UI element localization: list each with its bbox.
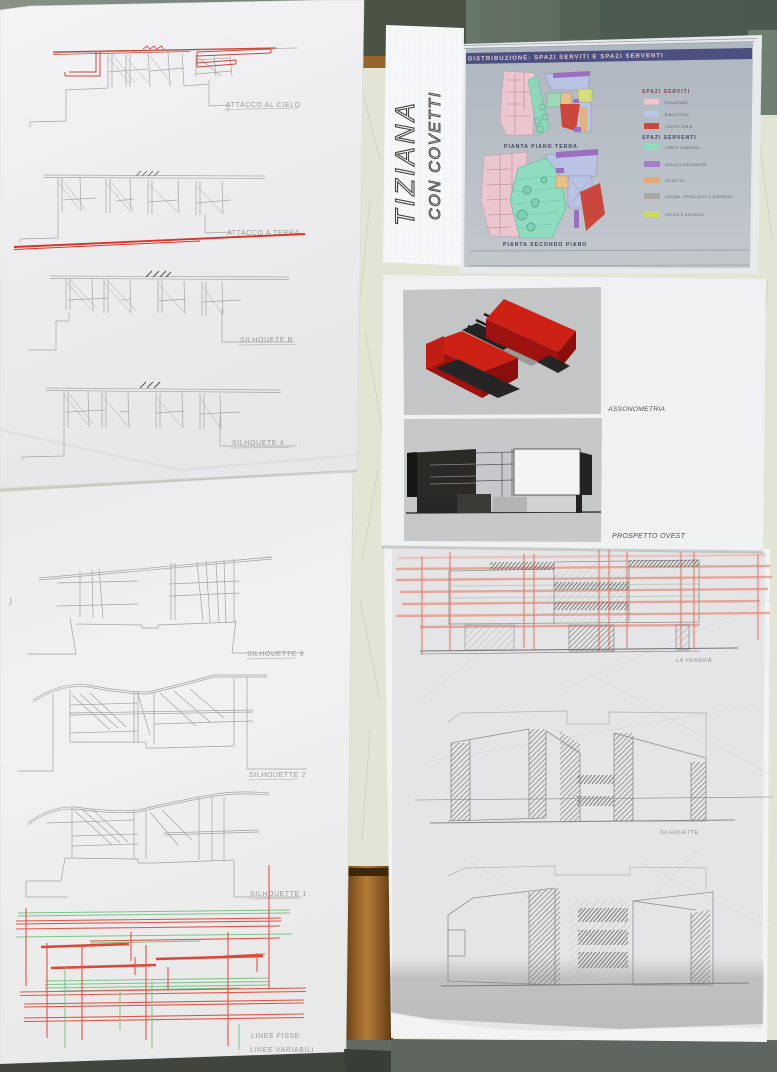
svg-text:CAFFETTERIA: CAFFETTERIA <box>665 125 693 129</box>
svg-text:LINEE FISSE: LINEE FISSE <box>251 1033 300 1040</box>
svg-text:SILHOUETE 4: SILHOUETE 4 <box>232 440 284 447</box>
svg-text:SILHOUETTE 3: SILHOUETTE 3 <box>247 651 304 658</box>
svg-text:LINEE VARIABILI: LINEE VARIABILI <box>250 1047 314 1054</box>
svg-text:RESIDENZE: RESIDENZE <box>665 101 688 105</box>
svg-text:SILHOUETE B: SILHOUETE B <box>240 337 293 344</box>
svg-text:TOILETTE: TOILETTE <box>665 179 685 183</box>
svg-text:PIANTA SECONDO PIANO: PIANTA SECONDO PIANO <box>503 242 587 248</box>
svg-text:LA VENARIA: LA VENARIA <box>676 658 712 664</box>
svg-text:SILHOUETTE 1: SILHOUETTE 1 <box>250 891 307 898</box>
svg-text:ASSONOMETRIA: ASSONOMETRIA <box>607 406 665 413</box>
svg-text:OFFICE E ARCHIVIO: OFFICE E ARCHIVIO <box>665 213 705 217</box>
svg-text:PROSPETTO OVEST: PROSPETTO OVEST <box>612 533 686 540</box>
svg-text:PIANTA PIANO TERRA: PIANTA PIANO TERRA <box>504 144 578 150</box>
svg-text:CON COVETTI: CON COVETTI <box>427 91 444 220</box>
svg-text:SILHOUETTE: SILHOUETTE <box>660 830 699 836</box>
svg-text:SPAZI SERVENTI: SPAZI SERVENTI <box>642 135 697 141</box>
svg-text:TIZIANA: TIZIANA <box>390 100 420 226</box>
svg-text:BIBLIOTECA: BIBLIOTECA <box>665 113 689 117</box>
svg-text:SPAZI SERVITI: SPAZI SERVITI <box>642 89 690 95</box>
svg-text:CORTE GIARDINO: CORTE GIARDINO <box>665 146 700 150</box>
svg-text:SILHOUETTE 2: SILHOUETTE 2 <box>249 772 306 779</box>
svg-text:CUCINA, SPOGLIATOI E DISPENSA: CUCINA, SPOGLIATOI E DISPENSA <box>665 195 733 199</box>
svg-text:SCALE E ASCENSORI: SCALE E ASCENSORI <box>665 163 707 167</box>
